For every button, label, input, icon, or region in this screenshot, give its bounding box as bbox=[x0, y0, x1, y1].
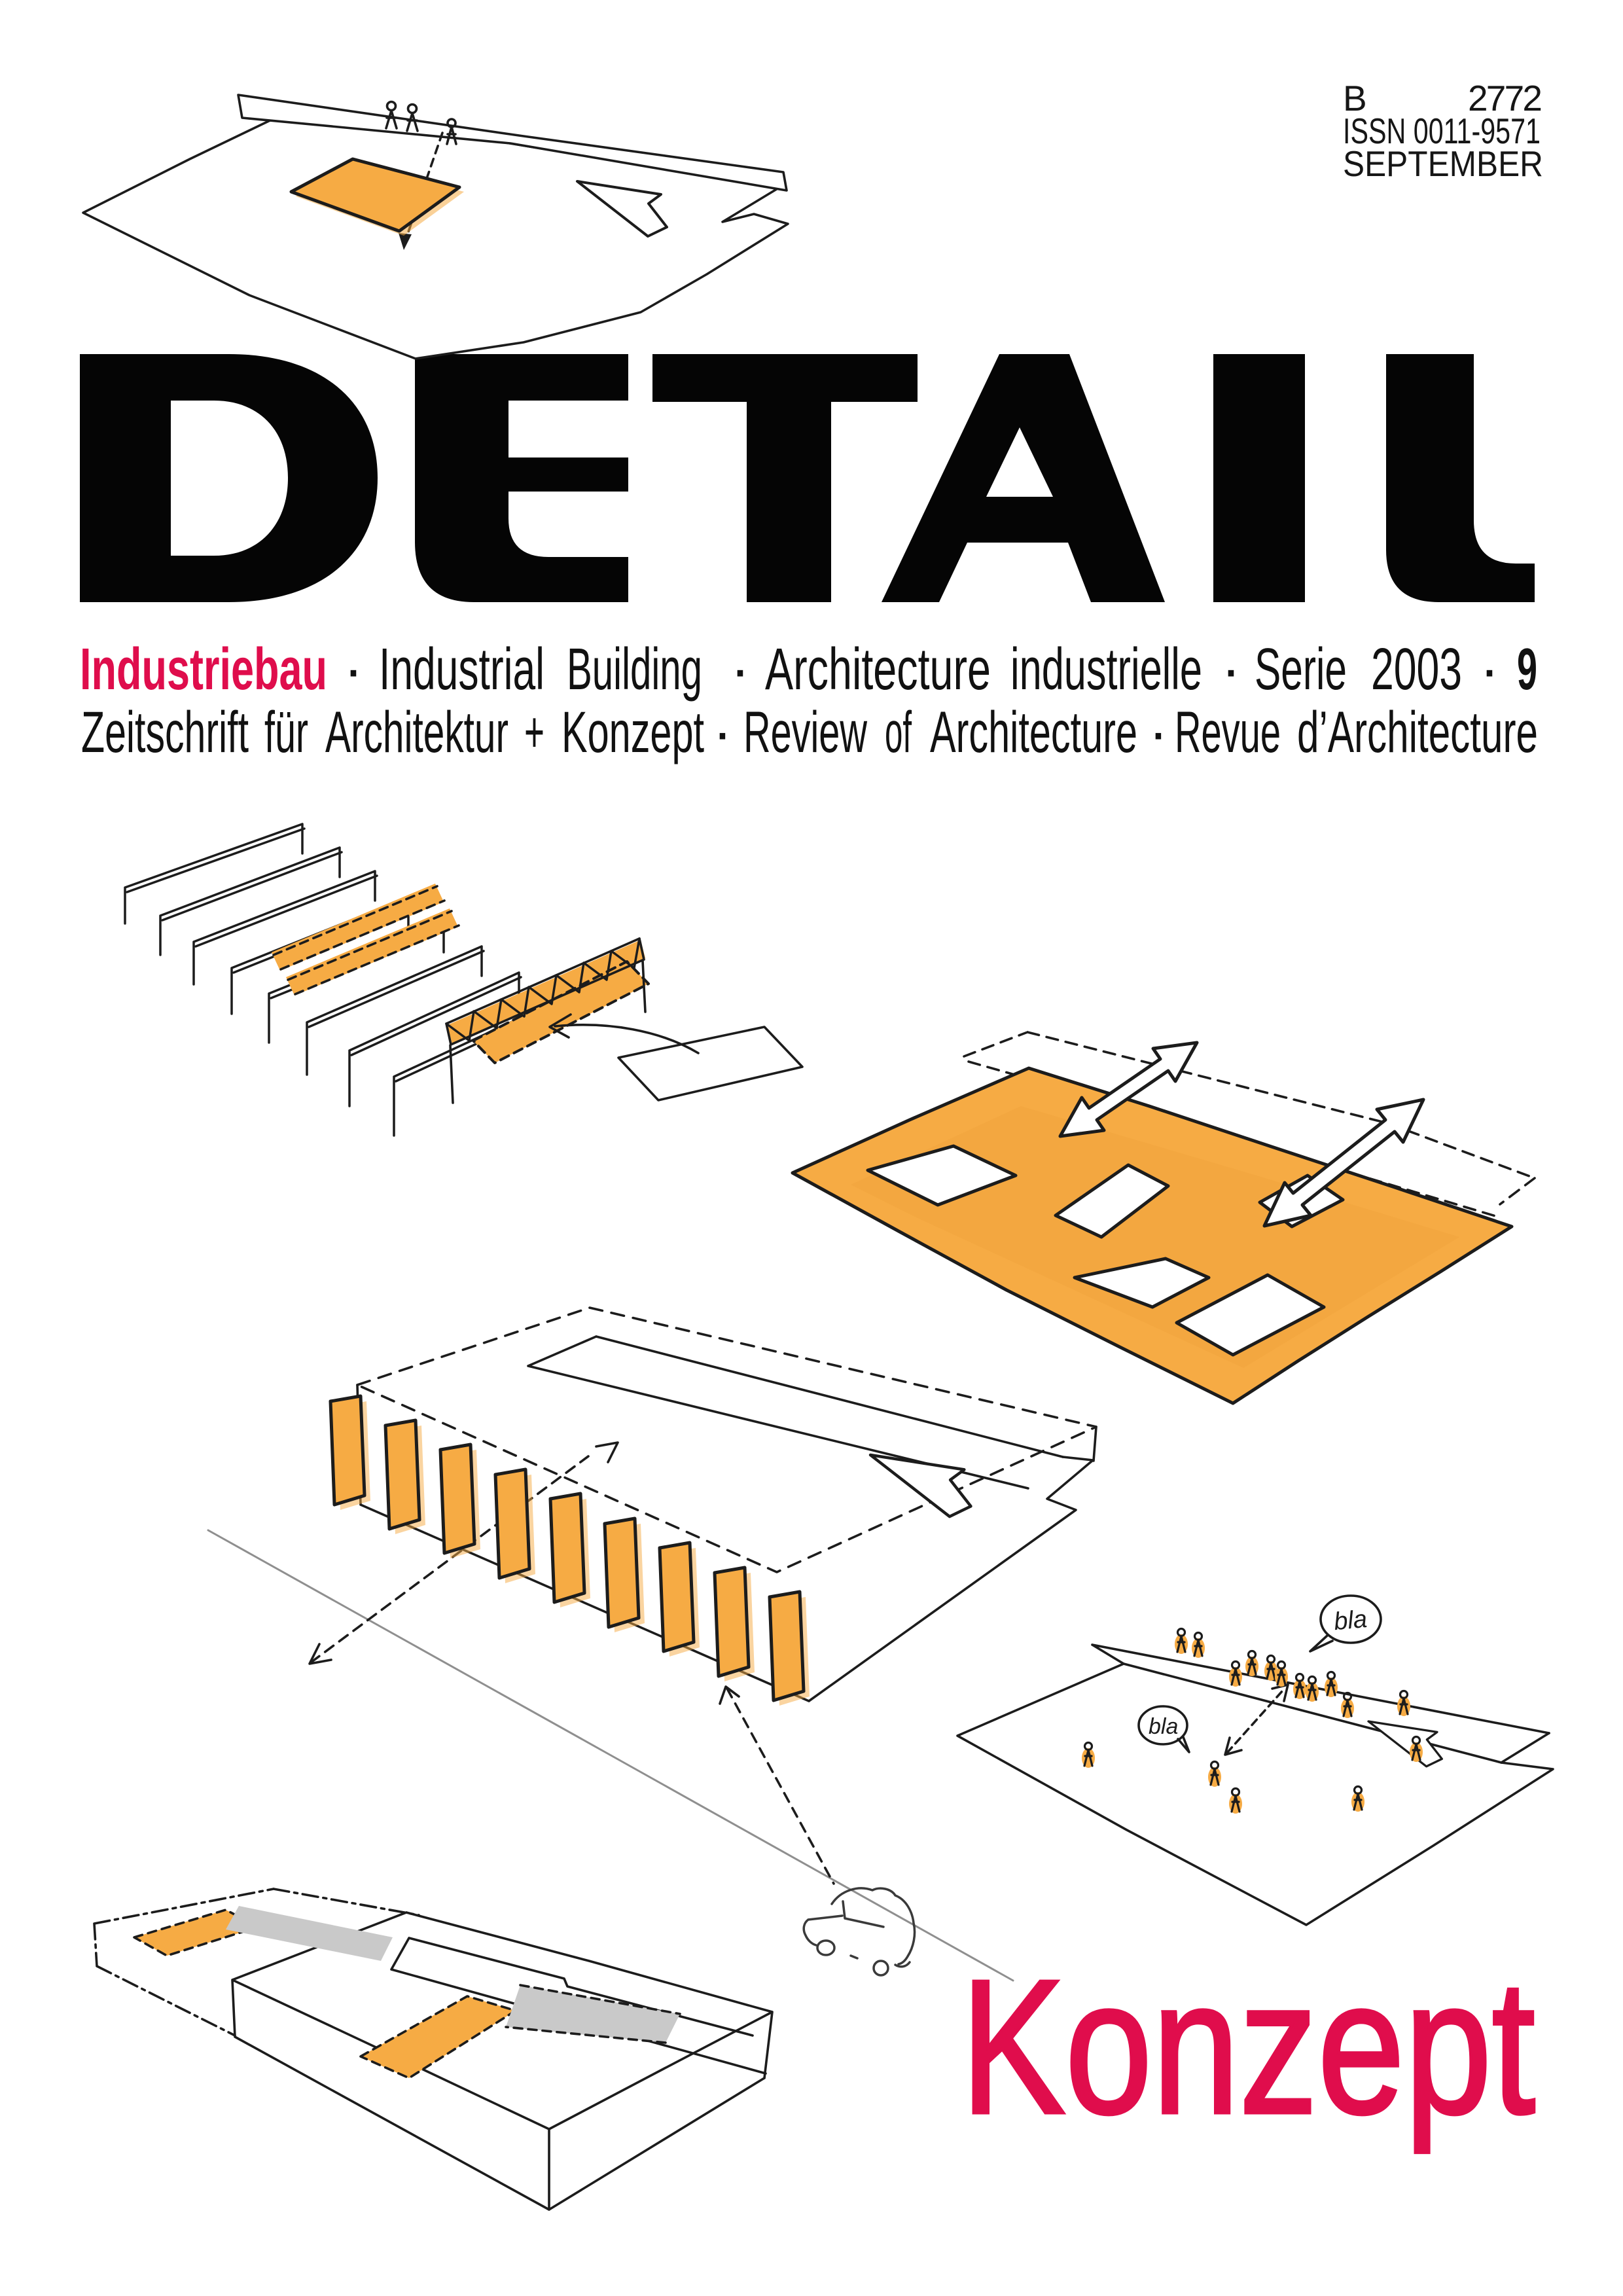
svg-text:industrielle: industrielle bbox=[1010, 637, 1202, 702]
svg-text:·: · bbox=[1221, 637, 1241, 702]
svg-text:Industriebau: Industriebau bbox=[80, 637, 327, 702]
svg-text:Building: Building bbox=[567, 637, 702, 702]
svg-text:2003: 2003 bbox=[1371, 637, 1462, 702]
svg-text:Konzept: Konzept bbox=[961, 1940, 1536, 2155]
svg-text:Architecture: Architecture bbox=[930, 699, 1137, 764]
svg-text:of: of bbox=[885, 699, 912, 764]
svg-text:·: · bbox=[1149, 699, 1168, 764]
svg-text:·: · bbox=[730, 637, 750, 702]
svg-text:für: für bbox=[264, 699, 308, 764]
svg-text:bla: bla bbox=[1332, 1605, 1368, 1636]
svg-text:Review: Review bbox=[743, 699, 867, 764]
svg-text:Revue: Revue bbox=[1175, 699, 1281, 764]
svg-text:·: · bbox=[713, 699, 732, 764]
svg-text:Zeitschrift: Zeitschrift bbox=[81, 699, 249, 764]
svg-text:SEPTEMBER: SEPTEMBER bbox=[1343, 143, 1543, 184]
svg-text:Architecture: Architecture bbox=[765, 637, 991, 702]
svg-text:·: · bbox=[1480, 637, 1499, 702]
svg-text:Serie: Serie bbox=[1255, 637, 1347, 702]
svg-text:9: 9 bbox=[1517, 637, 1537, 702]
svg-text:Konzept: Konzept bbox=[562, 699, 704, 764]
svg-text:Industrial: Industrial bbox=[379, 637, 544, 702]
svg-text:+: + bbox=[524, 699, 544, 764]
svg-text:d’Architecture: d’Architecture bbox=[1297, 699, 1538, 764]
svg-text:bla: bla bbox=[1149, 1714, 1178, 1739]
svg-text:Architektur: Architektur bbox=[325, 699, 508, 764]
svg-text:·: · bbox=[344, 637, 363, 702]
